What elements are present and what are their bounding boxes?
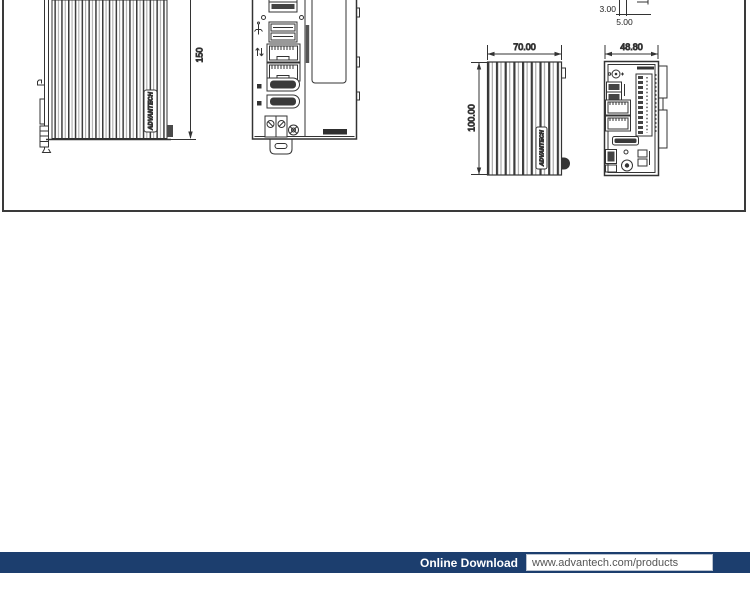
footer-url-box[interactable]: www.advantech.com/products bbox=[526, 554, 713, 571]
usb-ports bbox=[269, 22, 297, 42]
rj45-port bbox=[606, 116, 631, 131]
advantech-logo-text: ADVANTECH bbox=[149, 92, 155, 131]
io-port bbox=[606, 165, 617, 172]
expansion-label-text bbox=[306, 25, 309, 63]
dim-text-5: 5.00 bbox=[616, 17, 633, 27]
io-port bbox=[606, 150, 617, 164]
displayport-port bbox=[267, 95, 300, 108]
datasheet-page: ADVANTECH 150 bbox=[0, 0, 750, 591]
din-clip-bracket bbox=[659, 66, 668, 148]
large-front-view bbox=[253, 0, 360, 154]
usb-ports bbox=[607, 82, 625, 102]
usb-icon bbox=[255, 22, 263, 35]
side-label-area bbox=[312, 0, 346, 83]
power-button bbox=[608, 70, 624, 78]
advantech-logo-text: ADVANTECH bbox=[540, 130, 546, 167]
large-side-view: ADVANTECH 150 bbox=[38, 0, 205, 153]
width-dimension-48: 48.80 bbox=[605, 42, 658, 59]
screw bbox=[300, 16, 304, 20]
rj45-port bbox=[267, 44, 300, 62]
small-side-view: 70.00 100.00 ADVANTECH bbox=[467, 42, 571, 175]
footer-label: Online Download bbox=[420, 556, 518, 570]
vent-slots bbox=[638, 150, 650, 166]
footer-bar: Online Download www.advantech.com/produc… bbox=[0, 552, 750, 573]
clip-detail-dimensions: 3.00 5.00 bbox=[599, 0, 651, 27]
displayport-port bbox=[267, 78, 300, 91]
edge-bump bbox=[357, 57, 360, 67]
power-jack bbox=[622, 160, 633, 171]
advantech-label: ADVANTECH bbox=[536, 127, 547, 169]
small-front-view: 48.80 bbox=[605, 42, 668, 176]
edge-bump bbox=[357, 92, 360, 100]
terminal-block-strip bbox=[636, 74, 652, 136]
usb-ports-top bbox=[269, 0, 297, 12]
mounting-tab bbox=[270, 139, 292, 154]
dim-text-150: 150 bbox=[195, 47, 205, 62]
side-bump bbox=[167, 125, 173, 137]
dim-text-100: 100.00 bbox=[467, 104, 477, 132]
dim-text-3: 3.00 bbox=[599, 4, 616, 14]
width-dimension-70: 70.00 bbox=[488, 42, 562, 60]
footer-url[interactable]: www.advantech.com/products bbox=[532, 557, 678, 569]
model-name-label bbox=[323, 129, 347, 135]
dim-text-70: 70.00 bbox=[513, 42, 536, 52]
heatsink-fins bbox=[488, 62, 562, 175]
edge-bump bbox=[357, 8, 360, 17]
power-terminal-block bbox=[265, 116, 287, 137]
dp-icon bbox=[257, 101, 262, 106]
advantech-label: ADVANTECH bbox=[144, 90, 157, 132]
dp-icon bbox=[257, 84, 262, 89]
grounding-screw bbox=[289, 125, 299, 135]
led-indicator bbox=[624, 150, 628, 154]
ethernet-icon bbox=[256, 48, 264, 56]
edge-knob bbox=[562, 158, 571, 170]
height-dimension-150: 150 bbox=[171, 0, 205, 140]
mechanical-drawing: ADVANTECH 150 bbox=[0, 0, 750, 216]
height-dimension-100: 100.00 bbox=[467, 63, 488, 175]
hdmi-port bbox=[613, 137, 639, 146]
screw bbox=[262, 16, 266, 20]
model-name-label bbox=[637, 67, 654, 70]
din-rail bbox=[38, 0, 51, 153]
rj45-port bbox=[606, 100, 631, 115]
dim-text-48: 48.80 bbox=[620, 42, 643, 52]
